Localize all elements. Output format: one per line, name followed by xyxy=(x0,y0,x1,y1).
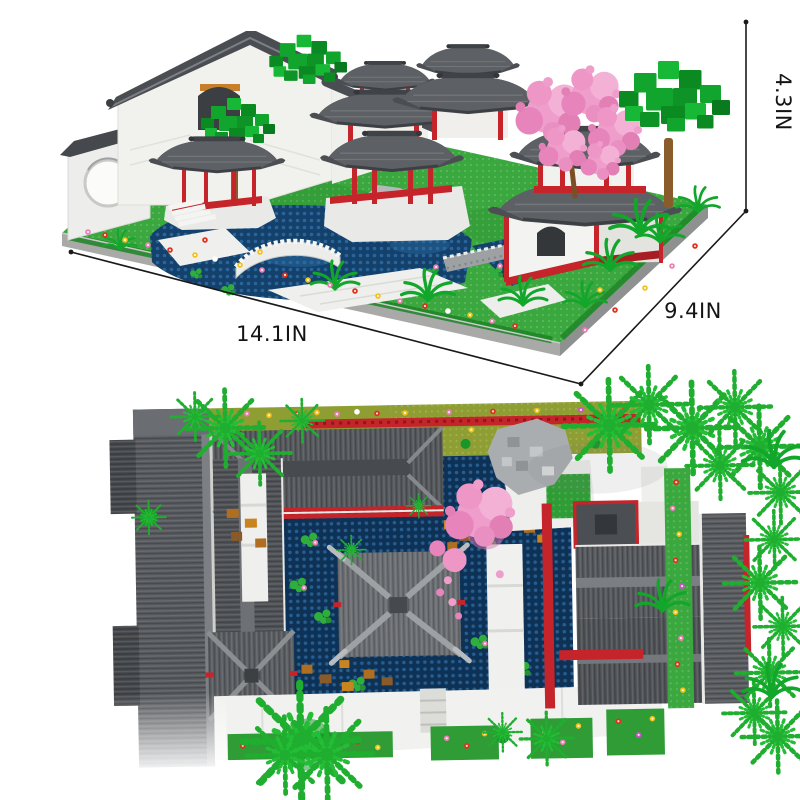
height-dimension-label: 4.3IN xyxy=(771,73,795,131)
product-image: 14.1IN 9.4IN 4.3IN xyxy=(0,0,800,800)
east-flower-border xyxy=(664,468,694,708)
product-figure: 14.1IN 9.4IN 4.3IN xyxy=(0,0,800,800)
depth-dimension-label: 9.4IN xyxy=(664,299,722,323)
west-path xyxy=(240,473,268,601)
top-down-view xyxy=(104,363,800,800)
west-roof-strip xyxy=(213,458,286,634)
width-dimension-label: 14.1IN xyxy=(236,322,308,346)
wall-fade xyxy=(110,692,227,776)
dimension-line-height xyxy=(744,20,749,214)
perspective-view xyxy=(60,31,730,356)
